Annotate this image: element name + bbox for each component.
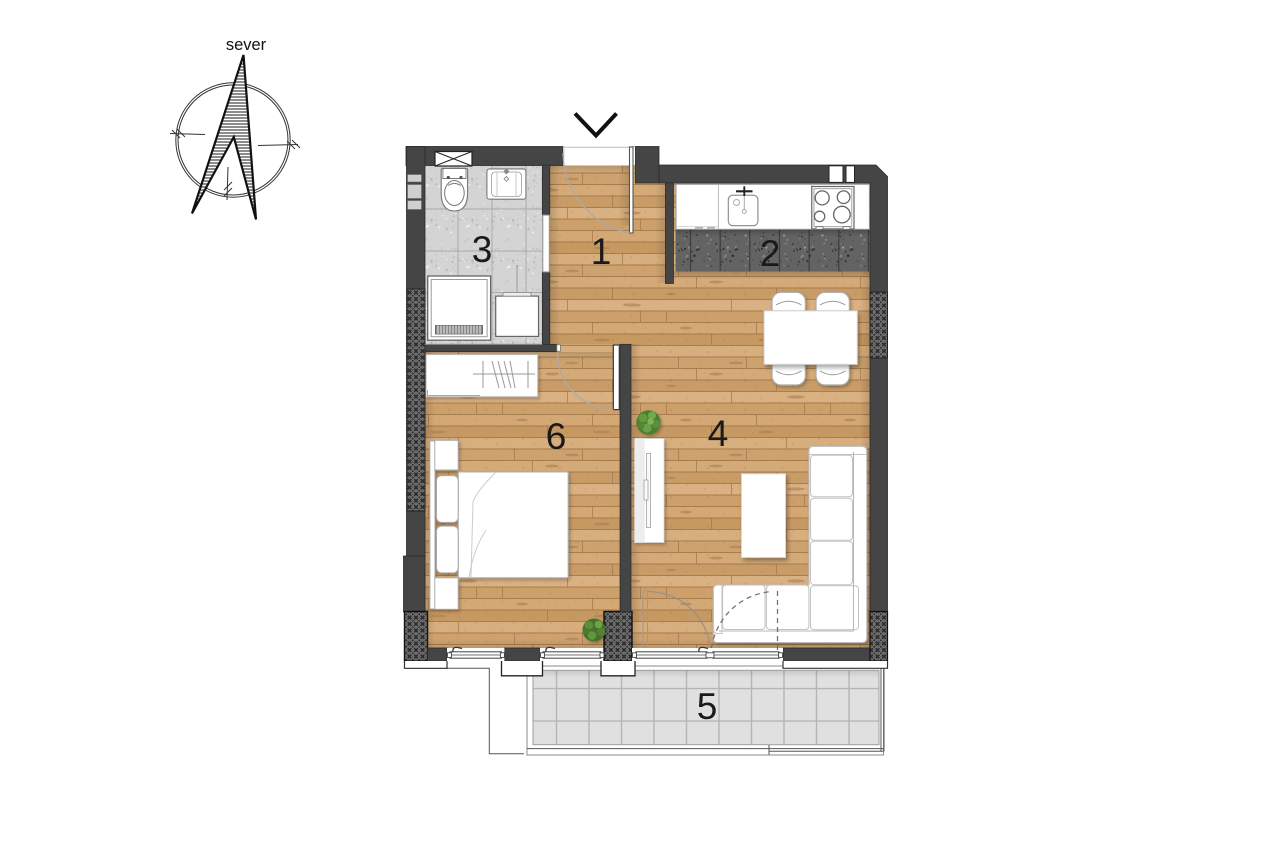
svg-text:1: 1: [591, 231, 612, 272]
svg-text:2: 2: [760, 233, 781, 274]
svg-text:3: 3: [472, 229, 493, 270]
svg-text:5: 5: [697, 686, 718, 727]
svg-text:4: 4: [708, 413, 729, 454]
svg-text:6: 6: [546, 416, 567, 457]
svg-text:sever: sever: [226, 36, 267, 54]
